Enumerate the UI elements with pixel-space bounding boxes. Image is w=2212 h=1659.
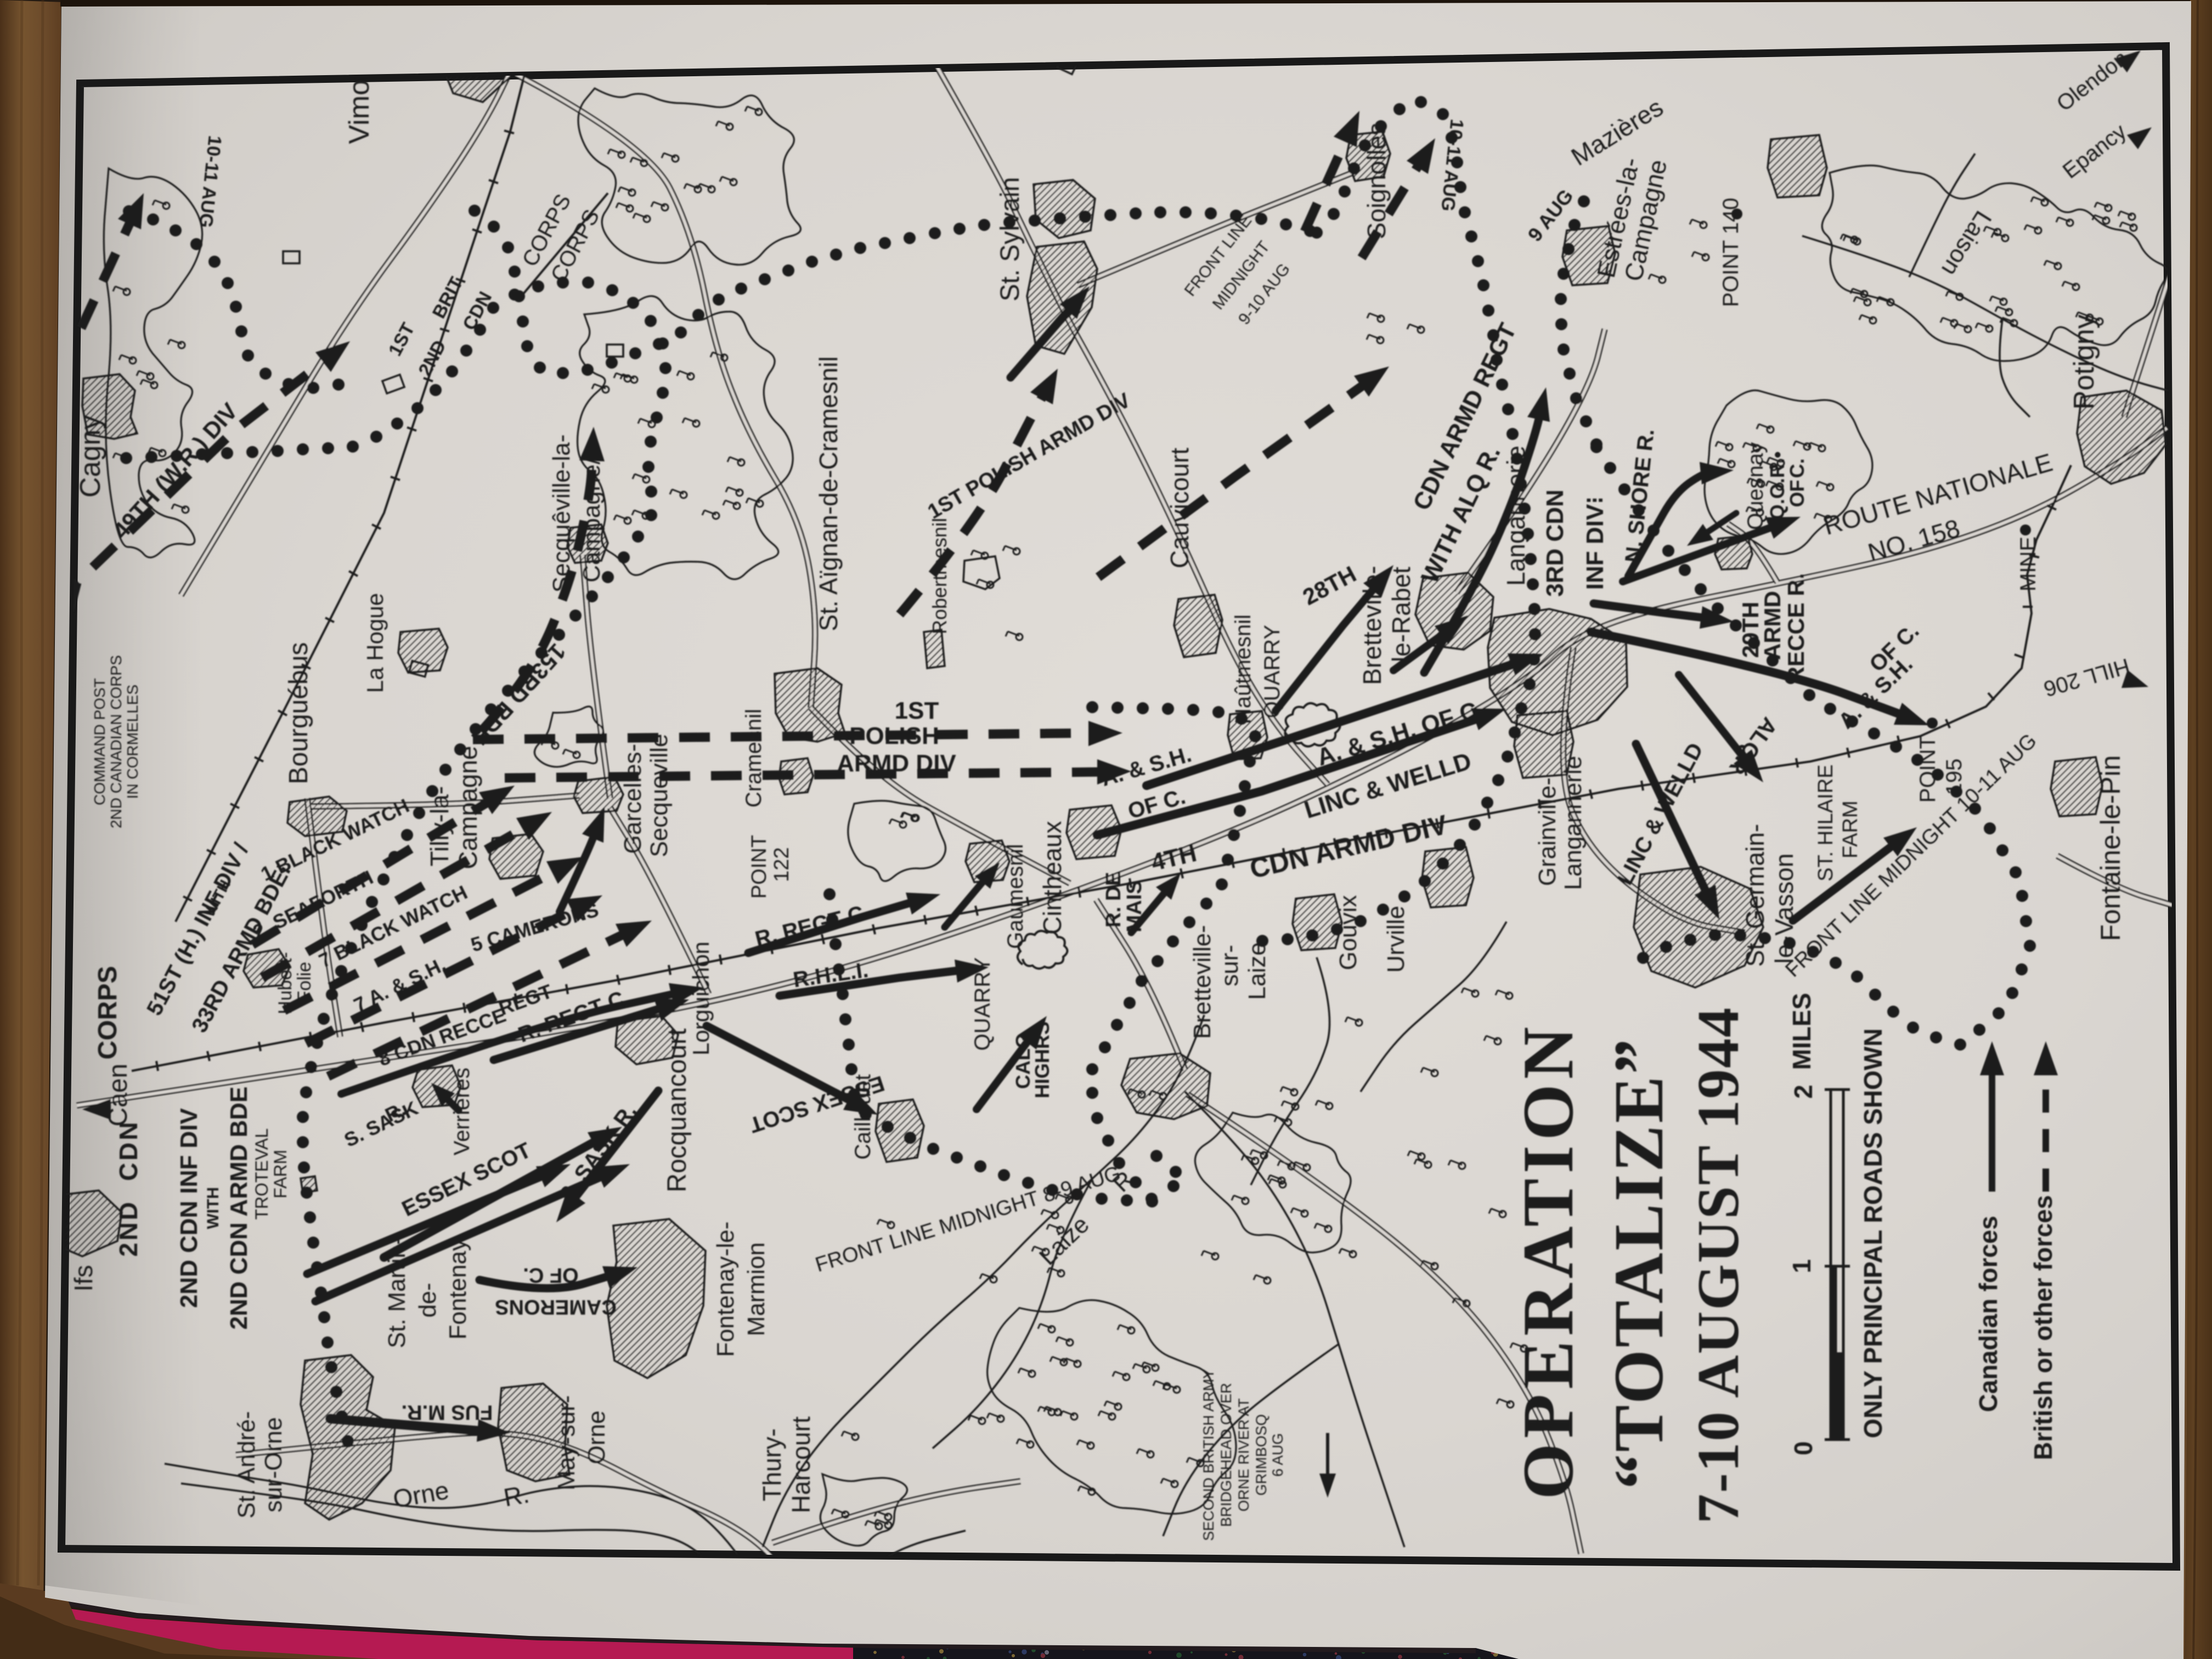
svg-text:Fontenay-le-: Fontenay-le- — [712, 1221, 739, 1357]
svg-text:Cramesnil: Cramesnil — [742, 709, 766, 808]
svg-text:Orne: Orne — [583, 1410, 610, 1464]
svg-text:Quesnay: Quesnay — [1743, 442, 1768, 530]
svg-text:Q.O.R.•: Q.O.R.• — [1766, 452, 1788, 520]
svg-text:WITH: WITH — [204, 1187, 222, 1229]
svg-text:QUARRY: QUARRY — [970, 957, 995, 1051]
svg-text:IN CORMELLES: IN CORMELLES — [124, 685, 141, 799]
svg-text:Secquêville-la-: Secquêville-la- — [548, 435, 575, 593]
svg-text:Gouvix: Gouvix — [1335, 895, 1362, 970]
svg-text:2ND CDN INF DIV: 2ND CDN INF DIV — [176, 1108, 202, 1308]
svg-text:MAIS: MAIS — [1123, 881, 1146, 933]
svg-text:2ND CANADIAN CORPS: 2ND CANADIAN CORPS — [108, 655, 125, 828]
svg-text:OF C.: OF C. — [523, 1263, 578, 1286]
svg-text:QUARRY: QUARRY — [1260, 625, 1284, 718]
svg-text:2ND CDN ARMD BDE: 2ND CDN ARMD BDE — [225, 1086, 252, 1329]
svg-text:122: 122 — [770, 847, 793, 882]
svg-text:POLISH: POLISH — [849, 723, 939, 749]
svg-text:Robertmesnil: Robertmesnil — [928, 518, 951, 634]
svg-text:St. Sylvain: St. Sylvain — [996, 177, 1025, 302]
svg-text:FARM: FARM — [1839, 800, 1862, 859]
svg-text:OF C.: OF C. — [1786, 459, 1808, 507]
svg-text:1: 1 — [1787, 1259, 1816, 1273]
svg-text:6 AUG: 6 AUG — [1269, 1433, 1286, 1477]
svg-text:Tilly-la-: Tilly-la- — [425, 786, 454, 867]
svg-text:RECCE R.: RECCE R. — [1783, 573, 1809, 684]
svg-text:Langannerie: Langannerie — [1560, 756, 1587, 890]
svg-text:Garcelles-: Garcelles- — [619, 744, 646, 854]
svg-text:FUS M.R.: FUS M.R. — [402, 1401, 493, 1424]
svg-text:Langannerie: Langannerie — [1502, 445, 1530, 586]
svg-text:Haûtmesnil: Haûtmesnil — [1231, 614, 1255, 724]
svg-text:de-: de- — [414, 1283, 441, 1318]
svg-text:ARMD DIV: ARMD DIV — [837, 750, 956, 777]
svg-text:Rocquancourt: Rocquancourt — [663, 1029, 692, 1193]
svg-text:le-Rabet: le-Rabet — [1387, 567, 1415, 662]
svg-text:Verrières: Verrières — [450, 1068, 474, 1155]
svg-text:POINT: POINT — [748, 835, 771, 899]
svg-text:GRIMBOSQ: GRIMBOSQ — [1253, 1414, 1269, 1496]
svg-text:British or other forces: British or other forces — [2029, 1195, 2057, 1460]
svg-text:Thury-: Thury- — [758, 1429, 786, 1502]
svg-text:R.: R. — [501, 1480, 531, 1512]
svg-text:Ifs: Ifs — [69, 1265, 98, 1292]
svg-text:ORNE RIVER AT: ORNE RIVER AT — [1235, 1398, 1252, 1512]
svg-text:Grainville-: Grainville- — [1534, 777, 1561, 886]
svg-text:sur-: sur- — [1216, 945, 1243, 986]
svg-text:2 N D C D N: 2 N D C D N — [114, 1122, 143, 1256]
svg-text:sur-Orne: sur-Orne — [260, 1417, 287, 1513]
svg-text:R. DE: R. DE — [1102, 872, 1125, 927]
svg-text:Laize: Laize — [1244, 942, 1271, 1000]
svg-text:May-sur-: May-sur- — [553, 1395, 580, 1491]
svg-text:MINE: MINE — [2016, 537, 2040, 591]
svg-text:St. Martin-: St. Martin- — [383, 1237, 410, 1348]
svg-text:St. Germain-: St. Germain- — [1741, 824, 1769, 967]
svg-text:Fontaine-le-Pin: Fontaine-le-Pin — [2095, 755, 2126, 941]
svg-text:Hubert-: Hubert- — [275, 952, 296, 1014]
svg-text:Cintheaux: Cintheaux — [1038, 821, 1066, 934]
svg-text:Lorguichon: Lorguichon — [688, 941, 714, 1056]
svg-text:Campagne: Campagne — [454, 746, 482, 869]
svg-text:St. André-: St. André- — [233, 1411, 260, 1519]
svg-text:7-10 AUGUST 1944: 7-10 AUGUST 1944 — [1686, 1007, 1751, 1523]
svg-text:BRIDGEHEAD OVER: BRIDGEHEAD OVER — [1218, 1383, 1234, 1527]
svg-text:Soignolles: Soignolles — [1362, 123, 1391, 239]
svg-text:“TOTALIZE”: “TOTALIZE” — [1600, 1037, 1678, 1489]
svg-text:Campagne/: Campagne/ — [578, 457, 605, 582]
svg-text:ONLY PRINCIPAL ROADS SHOWN: ONLY PRINCIPAL ROADS SHOWN — [1859, 1028, 1887, 1438]
svg-text:La Hogue: La Hogue — [362, 593, 388, 693]
svg-text:CAMERONS: CAMERONS — [495, 1295, 617, 1318]
svg-text:Gaumesnil: Gaumesnil — [1003, 844, 1028, 949]
svg-text:ST. HILAIRE: ST. HILAIRE — [1814, 764, 1837, 881]
svg-text:St. Aïgnan-de-Cramesnil: St. Aïgnan-de-Cramesnil — [814, 356, 843, 631]
svg-text:2: 2 — [1789, 1085, 1818, 1099]
svg-text:Secqueville: Secqueville — [646, 733, 673, 857]
svg-text:3RD CDN: 3RD CDN — [1542, 489, 1568, 597]
svg-text:HIGHRS: HIGHRS — [1031, 1022, 1053, 1098]
svg-text:Bretteville-: Bretteville- — [1189, 925, 1216, 1039]
svg-text:Harcourt: Harcourt — [787, 1417, 815, 1514]
svg-text:Potigny: Potigny — [2068, 314, 2100, 409]
svg-text:Fontenay: Fontenay — [444, 1239, 471, 1339]
svg-text:Cagny: Cagny — [75, 415, 106, 498]
svg-text:Urville: Urville — [1383, 906, 1409, 973]
svg-text:Cauvicourt: Cauvicourt — [1165, 448, 1194, 568]
svg-text:FARM: FARM — [270, 1150, 290, 1199]
svg-text:1ST: 1ST — [895, 697, 939, 724]
svg-text:POINT: POINT — [1916, 736, 1940, 803]
svg-text:le-Vasson: le-Vasson — [1770, 853, 1798, 963]
svg-text:Canadian forces: Canadian forces — [1974, 1216, 2002, 1412]
svg-text:Folie: Folie — [294, 962, 315, 1002]
svg-text:Bourguébus: Bourguébus — [284, 642, 313, 785]
svg-text:Bretteville-: Bretteville- — [1358, 566, 1386, 685]
svg-text:TROTEVAL: TROTEVAL — [252, 1128, 272, 1220]
svg-text:OPERATION: OPERATION — [1508, 1022, 1588, 1500]
svg-text:SECOND BRITISH ARMY: SECOND BRITISH ARMY — [1200, 1369, 1217, 1541]
svg-text:INF DIV⁝: INF DIV⁝ — [1582, 496, 1609, 590]
svg-text:MILES: MILES — [1787, 993, 1816, 1070]
svg-text:Marmion: Marmion — [743, 1242, 770, 1336]
svg-text:ARMD: ARMD — [1759, 591, 1785, 660]
svg-text:COMMAND POST: COMMAND POST — [91, 678, 108, 805]
svg-text:0: 0 — [1789, 1441, 1818, 1455]
svg-text:CORPS: CORPS — [93, 966, 122, 1060]
